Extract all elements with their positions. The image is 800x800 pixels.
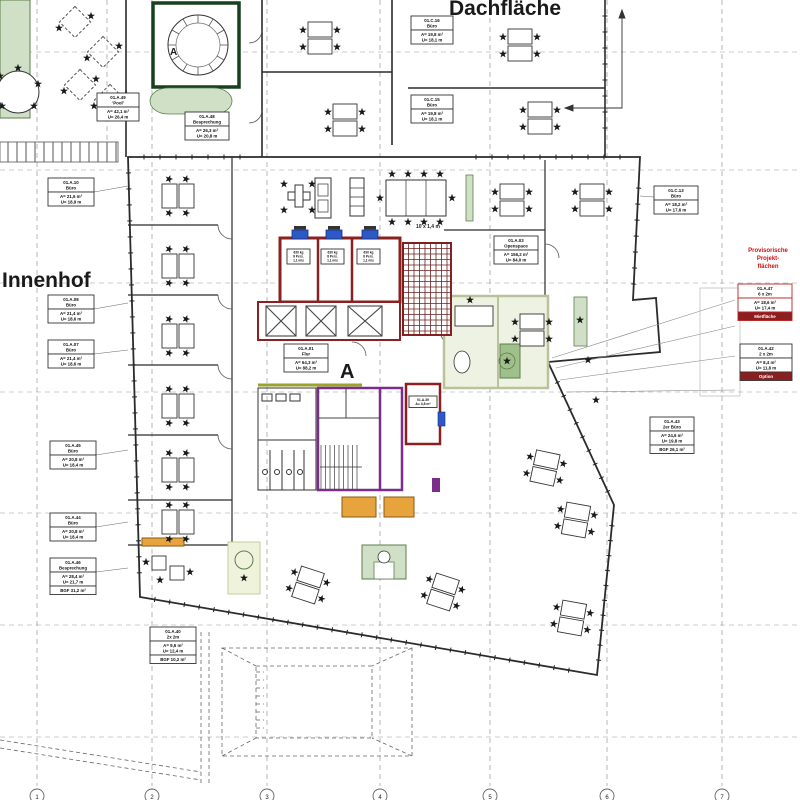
svg-text:A= 18,6 m²: A= 18,6 m² bbox=[754, 300, 777, 305]
courtyard-label: Innenhof bbox=[2, 269, 92, 292]
room-label: 630 kg8 Pers.1,1 m/s bbox=[357, 249, 380, 264]
room-label: 01.A.08BüroA= 21,4 m²U= 18,6 m bbox=[48, 295, 128, 323]
desk-pod bbox=[499, 29, 541, 61]
desk-pod bbox=[162, 175, 194, 217]
room-label: 01.A.10BüroA= 21,6 m²U= 18,9 m bbox=[48, 178, 128, 206]
svg-text:A= 19,8 m²: A= 19,8 m² bbox=[421, 32, 444, 37]
svg-text:A= 21,4 m²: A= 21,4 m² bbox=[60, 356, 83, 361]
svg-text:A= 21,4 m²: A= 21,4 m² bbox=[60, 311, 83, 316]
grid-bubble: 1 bbox=[30, 789, 44, 800]
desk-pod bbox=[519, 102, 561, 134]
stairwell bbox=[318, 388, 402, 490]
svg-text:Provisorische: Provisorische bbox=[748, 248, 788, 254]
room-label: 01.A.402x 2mA= 9,6 m²U= 12,4 mBGF 10,2 m… bbox=[150, 627, 196, 664]
desk-pod bbox=[299, 22, 341, 54]
desk-pod bbox=[162, 385, 194, 427]
svg-text:U= 18,6 m: U= 18,6 m bbox=[61, 362, 82, 367]
svg-text:BGF 31,2 m²: BGF 31,2 m² bbox=[60, 588, 86, 593]
grid-bubble: 7 bbox=[715, 789, 729, 800]
svg-text:Büro: Büro bbox=[66, 186, 77, 191]
desk-pod bbox=[162, 501, 194, 543]
svg-text:U= 18,9 m: U= 18,9 m bbox=[61, 200, 82, 205]
svg-text:2x 2m: 2x 2m bbox=[167, 635, 180, 640]
desk-pod bbox=[553, 501, 600, 540]
svg-text:A= 42,1 m²: A= 42,1 m² bbox=[107, 109, 130, 114]
room-label: 01.A.422 x 2mA= 8,4 m²U= 11,8 mOption bbox=[740, 344, 792, 381]
room-label: 01.A.39A= 4,8 m² bbox=[409, 396, 437, 408]
room-label: 01.A.44BüroA= 20,8 m²U= 18,4 m bbox=[50, 513, 128, 541]
svg-text:Büro: Büro bbox=[427, 103, 438, 108]
svg-text:01.C.16: 01.C.16 bbox=[424, 18, 440, 23]
svg-text:Büro: Büro bbox=[427, 24, 438, 29]
svg-text:01.A.46: 01.A.46 bbox=[65, 560, 81, 565]
svg-text:U= 18,4 m: U= 18,4 m bbox=[63, 535, 84, 540]
trellis bbox=[0, 142, 118, 162]
svg-text:BGF 26,1 m²: BGF 26,1 m² bbox=[659, 447, 685, 452]
desk-pod bbox=[549, 599, 596, 638]
room-label: 01.A.48BesprechungA= 26,3 m²U= 20,8 m bbox=[185, 112, 229, 140]
svg-text:A= 64,3 m²: A= 64,3 m² bbox=[295, 360, 318, 365]
svg-text:Option: Option bbox=[759, 374, 773, 379]
svg-text:Projekt-: Projekt- bbox=[757, 256, 779, 262]
desk-pod bbox=[162, 449, 194, 491]
room-label: 01.A.03OpenspaceA= 156,2 m²U= 84,0 m bbox=[494, 236, 538, 264]
svg-text:U= 18,4 m: U= 18,4 m bbox=[63, 463, 84, 468]
pavilion-letter: A bbox=[170, 47, 177, 58]
grid-bubble: 3 bbox=[260, 789, 274, 800]
room-label: 01.C.13BüroA= 18,2 m²U= 17,6 m bbox=[640, 186, 698, 214]
room-label: 01.A.432er BüroA= 24,6 m²U= 19,8 mBGF 26… bbox=[650, 417, 694, 454]
room-label: 01.C.15BüroA= 19,8 m²U= 18,1 m bbox=[411, 95, 453, 123]
svg-text:01.A.01: 01.A.01 bbox=[298, 346, 314, 351]
svg-text:Büro: Büro bbox=[66, 303, 77, 308]
elevator-block bbox=[280, 238, 400, 302]
svg-text:A= 19,8 m²: A= 19,8 m² bbox=[421, 111, 444, 116]
room-label: 01.A.476 x 2mA= 18,6 m²U= 17,4 mMietfläc… bbox=[738, 284, 792, 321]
svg-text:01.A.07: 01.A.07 bbox=[63, 342, 79, 347]
svg-text:01.A.45: 01.A.45 bbox=[65, 443, 81, 448]
svg-text:U= 26,4 m: U= 26,4 m bbox=[108, 115, 129, 120]
svg-text:A= 18,2 m²: A= 18,2 m² bbox=[665, 202, 688, 207]
purple-panel bbox=[432, 478, 440, 492]
room-label: 01.A.45BüroA= 20,8 m²U= 18,4 m bbox=[50, 441, 128, 469]
svg-text:01.A.49: 01.A.49 bbox=[110, 95, 126, 100]
svg-text:Büro: Büro bbox=[671, 194, 682, 199]
elevator-doors bbox=[292, 226, 378, 239]
room-label: 630 kg8 Pers.1,1 m/s bbox=[321, 249, 344, 264]
desk-pod bbox=[418, 570, 468, 613]
core-section-letter: A bbox=[340, 361, 354, 383]
svg-text:01.A.10: 01.A.10 bbox=[63, 180, 79, 185]
grid-bubble: 5 bbox=[483, 789, 497, 800]
svg-text:A= 20,8 m²: A= 20,8 m² bbox=[62, 529, 85, 534]
svg-text:01.A.43: 01.A.43 bbox=[664, 419, 680, 424]
room-label: 01.A.07BüroA= 21,4 m²U= 18,6 m bbox=[48, 340, 128, 368]
svg-text:6 x 2m: 6 x 2m bbox=[758, 292, 772, 297]
svg-text:01.C.13: 01.C.13 bbox=[668, 188, 684, 193]
wc-block bbox=[258, 388, 316, 490]
svg-text:U= 21,7 m: U= 21,7 m bbox=[63, 580, 84, 585]
roof-area-label: Dachfläche bbox=[449, 0, 561, 20]
svg-text:Openspace: Openspace bbox=[504, 244, 528, 249]
svg-text:Flur: Flur bbox=[302, 352, 311, 357]
dashed-table bbox=[64, 69, 95, 100]
svg-text:A= 21,6 m²: A= 21,6 m² bbox=[60, 194, 83, 199]
desk-pod bbox=[491, 184, 533, 216]
svg-text:A= 26,3 m²: A= 26,3 m² bbox=[196, 128, 219, 133]
svg-text:01.A.40: 01.A.40 bbox=[165, 629, 181, 634]
svg-text:U= 18,1 m: U= 18,1 m bbox=[422, 38, 443, 43]
svg-text:U= 19,8 m: U= 19,8 m bbox=[662, 439, 683, 444]
svg-text:U= 84,0 m: U= 84,0 m bbox=[506, 258, 527, 263]
svg-text:A= 24,6 m²: A= 24,6 m² bbox=[661, 433, 684, 438]
svg-text:Mietfläche: Mietfläche bbox=[754, 314, 776, 319]
svg-text:01.A.03: 01.A.03 bbox=[508, 238, 524, 243]
svg-text:U= 88,2 m: U= 88,2 m bbox=[296, 366, 317, 371]
dashed-table bbox=[59, 6, 90, 37]
svg-text:01.A.47: 01.A.47 bbox=[757, 286, 773, 291]
blue-panel bbox=[438, 412, 445, 426]
svg-text:A= 156,2 m²: A= 156,2 m² bbox=[504, 252, 529, 257]
svg-text:Besprechung: Besprechung bbox=[59, 566, 87, 571]
svg-text:01.A.44: 01.A.44 bbox=[65, 515, 81, 520]
grid-bubble: 4 bbox=[373, 789, 387, 800]
svg-text:A= 8,4 m²: A= 8,4 m² bbox=[756, 360, 776, 365]
room-label: 630 kg8 Pers.1,1 m/s bbox=[287, 249, 310, 264]
desk-pod bbox=[162, 245, 194, 287]
svg-text:01.A.48: 01.A.48 bbox=[199, 114, 215, 119]
planter-curve bbox=[150, 88, 232, 114]
svg-text:01.C.15: 01.C.15 bbox=[424, 97, 440, 102]
red-note: ProvisorischeProjekt-flächen bbox=[748, 248, 788, 270]
conference-table bbox=[386, 180, 446, 216]
svg-text:1,1 m/s: 1,1 m/s bbox=[363, 259, 374, 263]
shaft-hatch bbox=[403, 243, 451, 335]
table-dimension: 10 x 1,4 m bbox=[416, 224, 440, 230]
svg-text:1,1 m/s: 1,1 m/s bbox=[293, 259, 304, 263]
svg-text:flächen: flächen bbox=[757, 264, 778, 270]
svg-text:'Pool': 'Pool' bbox=[112, 101, 124, 106]
svg-text:Büro: Büro bbox=[68, 521, 79, 526]
svg-text:A= 28,4 m²: A= 28,4 m² bbox=[62, 574, 85, 579]
dimension-line bbox=[565, 10, 625, 111]
svg-text:U= 18,1 m: U= 18,1 m bbox=[422, 117, 443, 122]
svg-text:BGF 10,2 m²: BGF 10,2 m² bbox=[160, 657, 186, 662]
svg-text:01.A.08: 01.A.08 bbox=[63, 297, 79, 302]
svg-text:U= 17,4 m: U= 17,4 m bbox=[755, 306, 776, 311]
svg-text:U= 18,6 m: U= 18,6 m bbox=[61, 317, 82, 322]
floorplan-canvas: { "texts": { "dachflaeche": "Dachfläche"… bbox=[0, 0, 800, 800]
grid-bubble: 6 bbox=[600, 789, 614, 800]
room-label: 01.A.46BesprechungA= 28,4 m²U= 21,7 mBGF… bbox=[50, 558, 128, 595]
svg-text:U= 17,6 m: U= 17,6 m bbox=[666, 208, 687, 213]
svg-text:U= 12,4 m: U= 12,4 m bbox=[163, 649, 184, 654]
room-label: 01.C.16BüroA= 19,8 m²U= 18,1 m bbox=[411, 16, 453, 44]
svg-text:Besprechung: Besprechung bbox=[193, 120, 221, 125]
svg-text:U= 11,8 m: U= 11,8 m bbox=[756, 366, 776, 371]
svg-text:1,1 m/s: 1,1 m/s bbox=[327, 259, 338, 263]
svg-text:2er Büro: 2er Büro bbox=[663, 425, 681, 430]
grid-bubble: 2 bbox=[145, 789, 159, 800]
svg-text:A= 4,8 m²: A= 4,8 m² bbox=[415, 402, 431, 406]
svg-text:01.A.42: 01.A.42 bbox=[758, 346, 774, 351]
floorplan-drawing: 1234567 Dachfläche Innenhof bbox=[0, 0, 800, 800]
svg-text:A= 9,6 m²: A= 9,6 m² bbox=[163, 643, 183, 648]
room-label: 01.A.49'Pool'A= 42,1 m²U= 26,4 m bbox=[97, 93, 139, 121]
svg-text:U= 20,8 m: U= 20,8 m bbox=[197, 134, 218, 139]
desk-pod bbox=[283, 563, 333, 606]
svg-text:A= 20,8 m²: A= 20,8 m² bbox=[62, 457, 85, 462]
desk-pod bbox=[162, 315, 194, 357]
desk-pod bbox=[324, 104, 366, 136]
room-label: 01.A.01FlurA= 64,3 m²U= 88,2 m bbox=[284, 344, 328, 372]
underground-outline bbox=[0, 632, 412, 786]
svg-text:Büro: Büro bbox=[68, 449, 79, 454]
svg-text:Büro: Büro bbox=[66, 348, 77, 353]
desk-pod bbox=[521, 448, 569, 488]
svg-text:2 x 2m: 2 x 2m bbox=[759, 352, 773, 357]
shaft-row bbox=[258, 302, 400, 340]
